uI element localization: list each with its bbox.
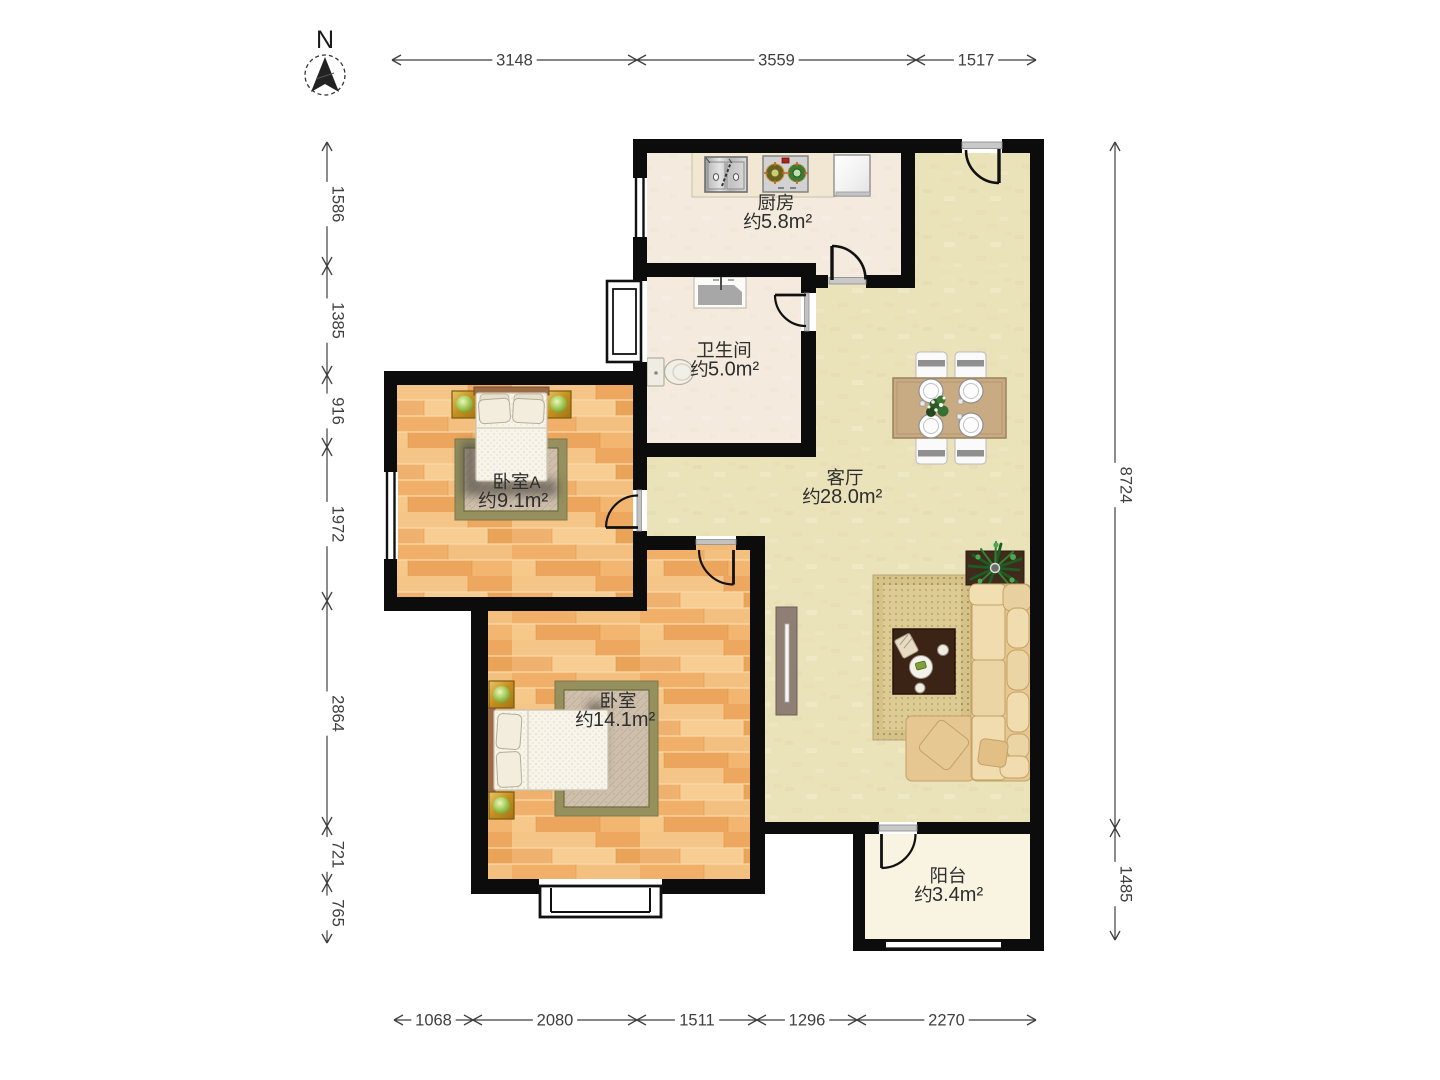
svg-text:765: 765	[329, 899, 347, 927]
svg-text:5.0m²: 5.0m²	[708, 359, 759, 381]
svg-text:N: N	[316, 26, 334, 54]
svg-text:8724: 8724	[1117, 467, 1135, 504]
svg-text:2270: 2270	[928, 1012, 965, 1030]
svg-text:3.4m²: 3.4m²	[932, 884, 983, 906]
svg-text:3559: 3559	[758, 52, 795, 70]
svg-text:1068: 1068	[415, 1012, 452, 1030]
svg-text:1296: 1296	[789, 1012, 826, 1030]
svg-text:916: 916	[329, 397, 347, 425]
svg-text:9.1m²: 9.1m²	[497, 490, 548, 512]
svg-text:1972: 1972	[329, 506, 347, 543]
svg-text:2864: 2864	[329, 695, 347, 732]
svg-text:14.1m²: 14.1m²	[593, 709, 656, 731]
svg-text:28.0m²: 28.0m²	[820, 486, 883, 508]
svg-text:5.8m²: 5.8m²	[761, 211, 812, 233]
svg-text:3148: 3148	[496, 52, 533, 70]
svg-text:2080: 2080	[537, 1012, 574, 1030]
svg-text:1586: 1586	[329, 186, 347, 223]
svg-text:1511: 1511	[679, 1012, 714, 1030]
svg-text:721: 721	[329, 841, 347, 869]
svg-text:1517: 1517	[958, 52, 995, 70]
svg-text:1385: 1385	[329, 302, 347, 339]
svg-text:1485: 1485	[1117, 866, 1135, 903]
